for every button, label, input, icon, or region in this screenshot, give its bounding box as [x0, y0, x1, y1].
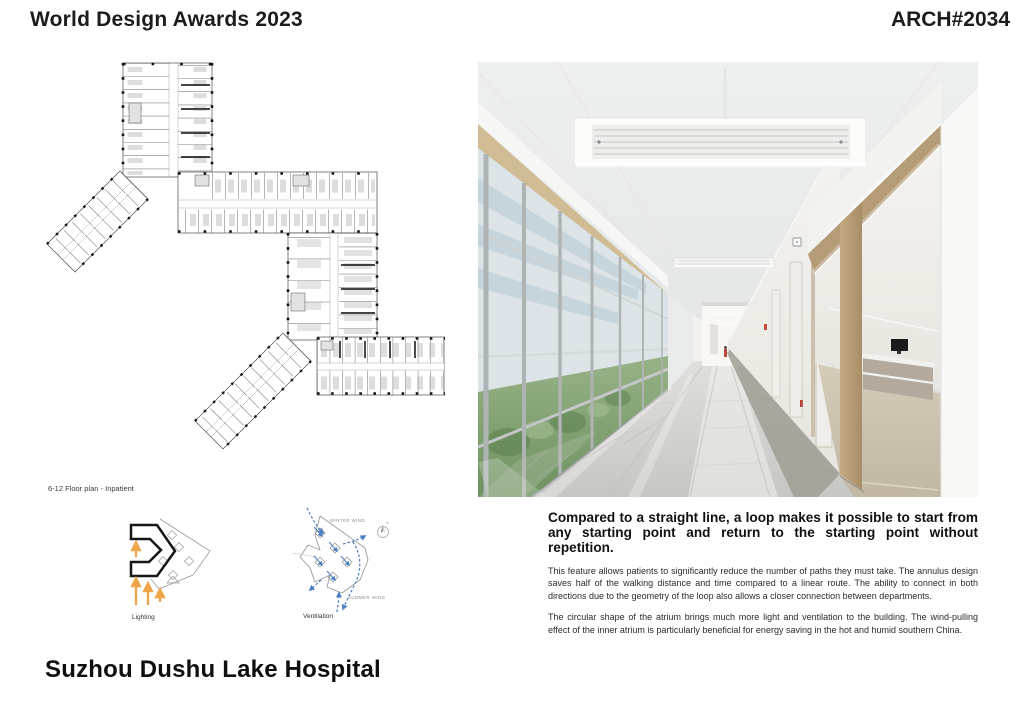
plan-wing-diagonal-upper	[47, 171, 148, 272]
wall-clock	[793, 238, 801, 246]
lighting-label: Lighting	[132, 614, 155, 621]
award-title: World Design Awards 2023	[30, 8, 303, 32]
description-block: Compared to a straight line, a loop make…	[548, 510, 978, 637]
sunlight-arrows	[136, 543, 160, 605]
wall-sign	[764, 324, 767, 330]
compass-n-label: N	[386, 521, 389, 525]
portal-jamb	[840, 202, 862, 490]
project-title: Suzhou Dushu Lake Hospital	[45, 656, 381, 684]
lighting-diagram: Lighting	[105, 505, 255, 640]
plan-wing-middle	[178, 172, 377, 233]
lighting-diagram-svg: Lighting	[105, 505, 255, 640]
desk-monitor	[891, 339, 908, 351]
ventilation-building-outline	[292, 516, 368, 593]
ventilation-diagram-svg: N WINTER WIND SUMMER WIND Ventilation	[285, 500, 435, 635]
ventilation-label: Ventilation	[303, 613, 333, 620]
plan-wing-bottom	[317, 337, 445, 395]
compass-icon: N	[378, 521, 390, 538]
plan-wing-top	[123, 63, 212, 177]
ceiling-diffuser-far	[674, 258, 774, 267]
floor-plan-drawing	[45, 57, 445, 482]
presentation-board: World Design Awards 2023 ARCH#2034	[0, 0, 1024, 724]
lighting-building-outline	[131, 519, 210, 589]
plan-wing-diagonal-lower	[195, 333, 311, 449]
corridor-photo-svg	[478, 62, 978, 497]
description-paragraph-2: The circular shape of the atrium brings …	[548, 611, 978, 636]
description-heading: Compared to a straight line, a loop make…	[548, 510, 978, 556]
near-pillar	[941, 88, 978, 497]
description-paragraph-1: This feature allows patients to signific…	[548, 565, 978, 603]
fire-extinguisher	[800, 400, 803, 407]
plan-wing-right	[288, 233, 377, 340]
winter-wind-label: WINTER WIND	[330, 518, 365, 523]
floor-plan-caption: 6-12 Floor plan - Inpatient	[48, 484, 134, 493]
summer-wind-label: SUMMER WIND	[348, 595, 385, 600]
ventilation-diagram: N WINTER WIND SUMMER WIND Ventilation	[285, 500, 435, 635]
floor-plan-svg	[45, 57, 445, 482]
corridor-photo	[478, 62, 978, 497]
entry-code: ARCH#2034	[891, 8, 1010, 32]
